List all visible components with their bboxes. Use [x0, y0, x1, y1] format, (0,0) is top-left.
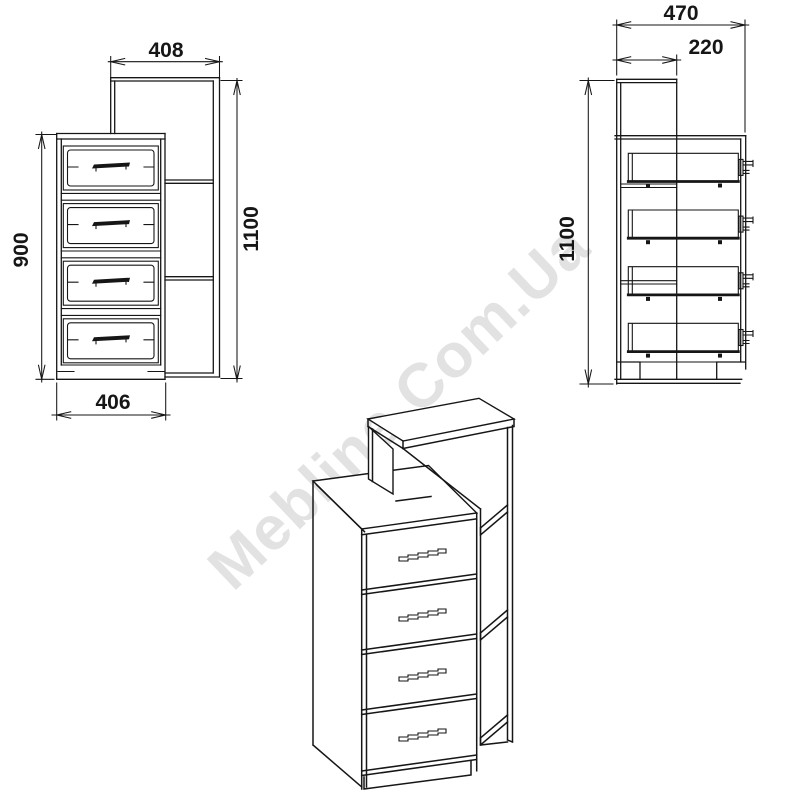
front-drawer-2	[63, 204, 158, 248]
side-drawer-2	[628, 210, 753, 244]
iso-drawer-handle-2	[399, 609, 446, 621]
iso-shelf-unit	[368, 398, 514, 745]
dim-label-406: 406	[95, 391, 130, 414]
front-dim-total-height: 1100	[221, 79, 263, 383]
technical-drawing-sheet: Mebline.Com.Ua	[0, 0, 800, 800]
furniture-blueprint-canvas: Mebline.Com.Ua	[0, 0, 800, 800]
side-dim-total-depth: 470	[613, 2, 749, 132]
dim-label-1100-side: 1100	[556, 216, 579, 262]
iso-drawer-handle-4	[399, 729, 446, 741]
front-drawer-4	[63, 319, 158, 363]
side-carcass	[615, 79, 746, 384]
dim-label-470: 470	[663, 2, 698, 25]
side-view: 470 220 1100	[556, 2, 753, 387]
side-drawer-4	[628, 323, 753, 357]
front-dim-shelf-width: 408	[108, 39, 222, 77]
dim-label-408: 408	[148, 39, 183, 62]
side-drawer-1	[628, 153, 753, 187]
front-drawer-1	[63, 146, 158, 190]
iso-drawer-handle-3	[399, 669, 446, 681]
front-chest-body	[57, 134, 165, 380]
front-drawer-3	[63, 261, 158, 305]
iso-chest	[313, 466, 477, 790]
dim-label-220: 220	[688, 36, 723, 59]
front-view: 408 1100 900 406	[10, 39, 263, 420]
iso-drawer-handle-1	[399, 549, 446, 561]
side-dim-shelf-depth: 220	[613, 36, 724, 75]
dim-label-1100-front: 1100	[240, 206, 263, 252]
watermark-text: Mebline.Com.Ua	[195, 211, 602, 603]
front-dim-chest-width: 406	[52, 383, 170, 420]
side-dim-total-height: 1100	[556, 78, 614, 387]
dim-label-900: 900	[10, 232, 33, 267]
front-dim-chest-height: 900	[10, 132, 56, 382]
